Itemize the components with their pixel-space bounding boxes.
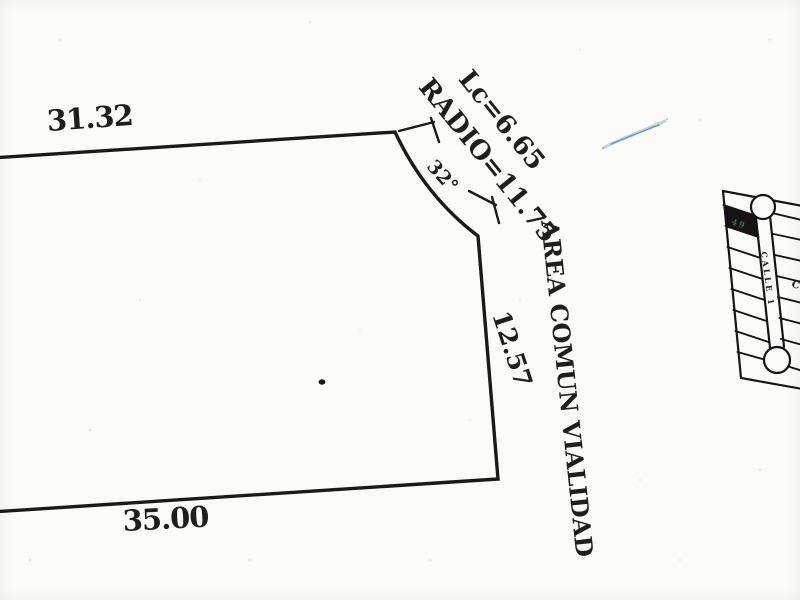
dimension-tick-end (492, 197, 499, 223)
partial-right-label: C (790, 279, 800, 292)
scanned-survey-plan: 49 CALLE 1 C 31.32 35.00 12.57 32° RADIO… (0, 0, 800, 600)
survey-drawing: 49 CALLE 1 C (0, 0, 800, 600)
inset-map: 49 CALLE 1 C (723, 191, 800, 390)
top-edge-dimension: 31.32 (46, 101, 134, 136)
ink-dot (319, 379, 326, 384)
parcel-outline (0, 132, 498, 512)
pen-mark (602, 118, 668, 149)
bottom-edge-dimension: 35.00 (122, 503, 209, 536)
dimension-line-start (399, 122, 434, 131)
